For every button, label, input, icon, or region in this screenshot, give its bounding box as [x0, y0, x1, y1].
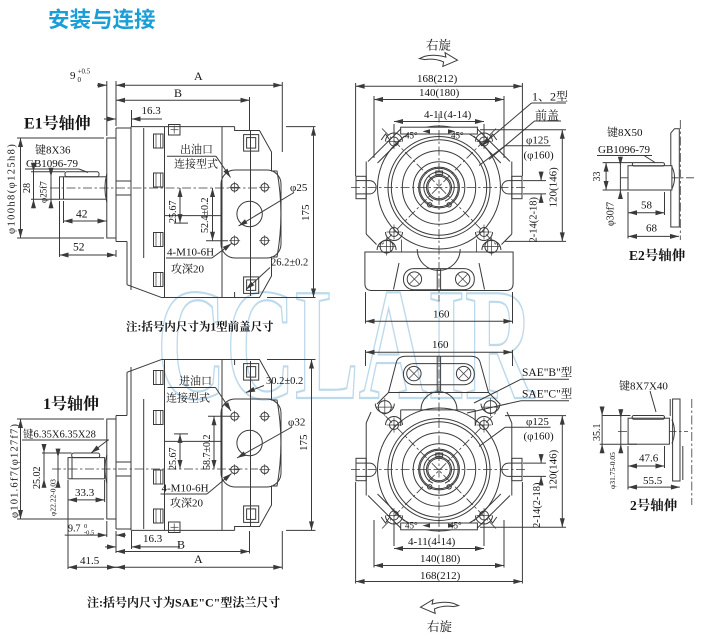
svg-text:右旋: 右旋	[427, 619, 453, 634]
svg-text:φ32: φ32	[288, 417, 305, 429]
svg-text:168(212): 168(212)	[417, 73, 458, 85]
svg-text:4-M10-6H: 4-M10-6H	[162, 483, 209, 495]
svg-text:连接型式: 连接型式	[174, 157, 218, 171]
svg-text:安装与连接: 安装与连接	[48, 3, 156, 34]
svg-text:9.7: 9.7	[68, 524, 81, 535]
svg-text:4-M10-6H: 4-M10-6H	[167, 247, 214, 259]
svg-text:140(180): 140(180)	[420, 553, 461, 565]
svg-text:键8X50: 键8X50	[607, 125, 643, 139]
svg-text:35.1: 35.1	[592, 424, 603, 442]
svg-text:注:括号内尺寸为1型前盖尺寸: 注:括号内尺寸为1型前盖尺寸	[126, 320, 274, 334]
svg-text:1号轴伸: 1号轴伸	[43, 395, 99, 413]
svg-text:φ30f7: φ30f7	[606, 202, 617, 226]
svg-text:B: B	[174, 86, 182, 100]
svg-text:1、2型: 1、2型	[532, 89, 568, 104]
svg-text:25.02: 25.02	[32, 467, 43, 490]
svg-text:33.3: 33.3	[75, 487, 95, 499]
svg-text:0: 0	[78, 76, 82, 84]
svg-text:52: 52	[73, 242, 85, 254]
svg-text:B: B	[177, 538, 185, 552]
svg-text:φ25: φ25	[290, 182, 308, 194]
svg-text:45°: 45°	[405, 131, 418, 141]
svg-text:φ100h8(φ125h8): φ100h8(φ125h8)	[7, 143, 18, 234]
svg-text:SAE"B"型: SAE"B"型	[522, 365, 572, 379]
svg-text:前盖: 前盖	[535, 109, 559, 123]
svg-text:φ25f7: φ25f7	[39, 181, 49, 203]
svg-text:(φ160): (φ160)	[524, 150, 555, 162]
svg-text:58.7±0.2: 58.7±0.2	[202, 435, 213, 471]
svg-text:A: A	[194, 69, 203, 83]
svg-text:68: 68	[646, 223, 658, 235]
svg-text:45°: 45°	[405, 521, 418, 531]
svg-text:26.2±0.2: 26.2±0.2	[271, 258, 308, 269]
svg-text:攻深20: 攻深20	[171, 263, 204, 276]
svg-text:SAE"C"型: SAE"C"型	[522, 387, 572, 401]
svg-text:+0.5: +0.5	[78, 68, 91, 76]
svg-text:φ31.75-0.05: φ31.75-0.05	[608, 452, 617, 489]
svg-text:2-14(2-18): 2-14(2-18)	[532, 482, 543, 528]
svg-text:E1号轴伸: E1号轴伸	[24, 115, 91, 133]
svg-text:右旋: 右旋	[426, 38, 452, 53]
svg-text:160: 160	[433, 309, 450, 321]
svg-text:41.5: 41.5	[80, 555, 100, 567]
svg-text:52.4±0.2: 52.4±0.2	[200, 198, 211, 234]
svg-text:键8X7X40: 键8X7X40	[619, 379, 668, 393]
svg-text:φ125: φ125	[526, 135, 549, 147]
svg-text:175: 175	[298, 434, 310, 451]
svg-text:键8X36: 键8X36	[35, 143, 71, 157]
svg-text:42: 42	[76, 209, 88, 221]
svg-text:120(146): 120(146)	[548, 449, 560, 490]
svg-text:4-11(4-14): 4-11(4-14)	[408, 536, 456, 548]
svg-text:30.2±0.2: 30.2±0.2	[266, 376, 303, 387]
svg-text:CCLAIR: CCLAIR	[157, 255, 535, 433]
svg-text:键6.35X6.35X28: 键6.35X6.35X28	[23, 428, 96, 441]
svg-text:16.3: 16.3	[143, 533, 163, 545]
svg-text:(φ160): (φ160)	[524, 431, 555, 443]
svg-text:58: 58	[641, 200, 653, 212]
svg-text:33: 33	[592, 172, 603, 182]
svg-text:A: A	[194, 552, 203, 566]
svg-text:55.5: 55.5	[643, 475, 663, 487]
svg-text:4-11(4-14): 4-11(4-14)	[424, 109, 472, 121]
svg-text:168(212): 168(212)	[420, 570, 461, 582]
svg-text:2号轴伸: 2号轴伸	[630, 497, 678, 513]
svg-text:25.67: 25.67	[168, 448, 179, 471]
svg-text:连接型式: 连接型式	[166, 391, 210, 405]
svg-text:出油口: 出油口	[180, 142, 213, 156]
svg-text:φ22.22-0.03: φ22.22-0.03	[49, 479, 58, 516]
svg-text:28: 28	[22, 183, 33, 193]
svg-text:9: 9	[70, 70, 76, 82]
svg-text:GB1096-79: GB1096-79	[598, 144, 650, 156]
svg-text:175: 175	[300, 204, 312, 221]
svg-text:2-14(2-18): 2-14(2-18)	[529, 197, 540, 243]
svg-text:进油口: 进油口	[179, 374, 212, 388]
svg-text:140(180): 140(180)	[419, 87, 460, 99]
svg-text:注:括号内尺寸为SAE"C"型法兰尺寸: 注:括号内尺寸为SAE"C"型法兰尺寸	[87, 595, 280, 610]
svg-text:攻深20: 攻深20	[170, 497, 203, 510]
svg-text:120(146): 120(146)	[548, 167, 560, 208]
svg-text:E2号轴伸: E2号轴伸	[629, 247, 686, 263]
svg-text:φ125: φ125	[526, 416, 549, 428]
svg-text:25.67: 25.67	[168, 201, 179, 224]
svg-text:16.3: 16.3	[142, 105, 162, 117]
svg-text:47.6: 47.6	[639, 453, 659, 465]
svg-text:φ101.6f7(φ127f7): φ101.6f7(φ127f7)	[10, 423, 21, 518]
svg-text:160: 160	[432, 339, 449, 351]
